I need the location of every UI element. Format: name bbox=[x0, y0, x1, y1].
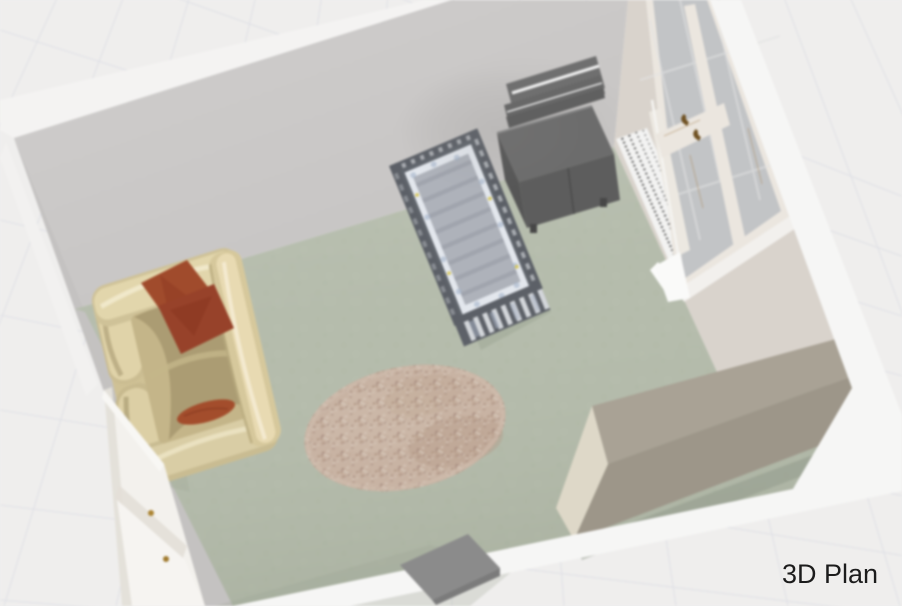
svg-text:3D Plan: 3D Plan bbox=[782, 559, 878, 589]
